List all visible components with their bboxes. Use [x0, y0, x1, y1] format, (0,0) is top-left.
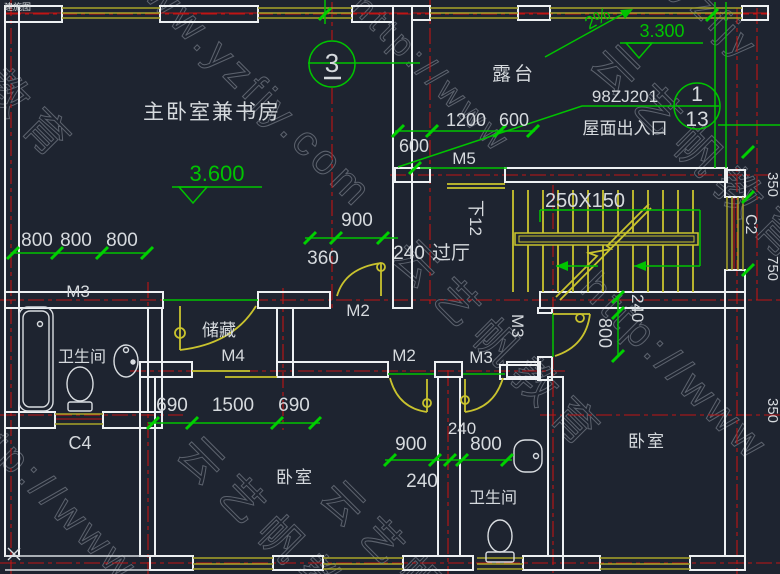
plan-canvas: www.yzfjy.com http://www yzfjy 云艺帆教育 云艺帆… — [0, 0, 780, 574]
dim-value-vertical: 240 — [628, 294, 647, 322]
dim-value-vertical: 350 — [764, 398, 780, 423]
dim-value-vertical: 350 — [764, 172, 780, 197]
dim-value: 800 — [21, 230, 53, 251]
level-mark-master: 3.600 — [189, 161, 244, 186]
dim-value: 360 — [307, 248, 339, 269]
window-label-c2: C2 — [742, 214, 759, 235]
dim-value: 690 — [156, 395, 188, 416]
door-label-m2-bed: M2 — [392, 346, 416, 365]
detail-ref-number: 1 — [691, 83, 703, 106]
grid-bubble-number: 3 — [325, 48, 339, 78]
dim-value: 800 — [60, 230, 92, 251]
door-label-m3-bath2: M3 — [469, 348, 493, 367]
dim-value: 690 — [278, 395, 310, 416]
dim-value-vertical: 750 — [764, 256, 780, 281]
room-label-bed1: 卧室 — [276, 468, 314, 487]
dim-value: 900 — [341, 210, 373, 231]
dim-value: 800 — [470, 434, 502, 455]
level-mark-terrace: 3.300 — [639, 21, 684, 41]
room-label-storage: 储藏 — [202, 321, 236, 340]
cad-floor-plan: www.yzfjy.com http://www yzfjy 云艺帆教育 云艺帆… — [0, 0, 780, 574]
room-label-terrace: 露台 — [492, 63, 536, 85]
door-label-m3-bath1: M3 — [66, 282, 90, 301]
stair-handrail — [515, 233, 698, 245]
room-label-hall: 过厅 — [432, 242, 470, 264]
door-label-m2-hall: M2 — [346, 301, 370, 320]
dim-value: 900 — [395, 434, 427, 455]
room-label-bath1: 卫生间 — [58, 348, 106, 366]
room-label-bed2: 卧室 — [628, 432, 666, 451]
door-label-m5: M5 — [452, 149, 476, 168]
dim-value: 600 — [399, 136, 429, 156]
corner-label: 建施图 — [4, 1, 31, 12]
room-label-bath2: 卫生间 — [469, 489, 517, 507]
dim-value: 800 — [106, 230, 138, 251]
dim-value: 240 — [393, 243, 425, 264]
dim-value-vertical: 800 — [595, 318, 615, 348]
basin-tap — [131, 360, 135, 364]
room-label-master: 主卧室兼书房 — [143, 101, 281, 124]
detail-ref-caption: 屋面出入口 — [583, 119, 668, 138]
dim-value: 240 — [406, 471, 438, 492]
detail-ref-sheet: 13 — [685, 108, 708, 131]
stair-direction-label: 下12 — [466, 200, 485, 236]
dim-value: 1500 — [212, 395, 254, 416]
window-label-c4: C4 — [68, 433, 91, 453]
door-label-m4: M4 — [221, 346, 245, 365]
stair-tread-size: 250X150 — [545, 190, 625, 212]
dim-value: 1200 — [446, 110, 486, 130]
door-label-m3-bed2: M3 — [508, 314, 527, 338]
dim-value: 600 — [499, 110, 529, 130]
detail-ref-code: 98ZJ201 — [592, 87, 658, 106]
